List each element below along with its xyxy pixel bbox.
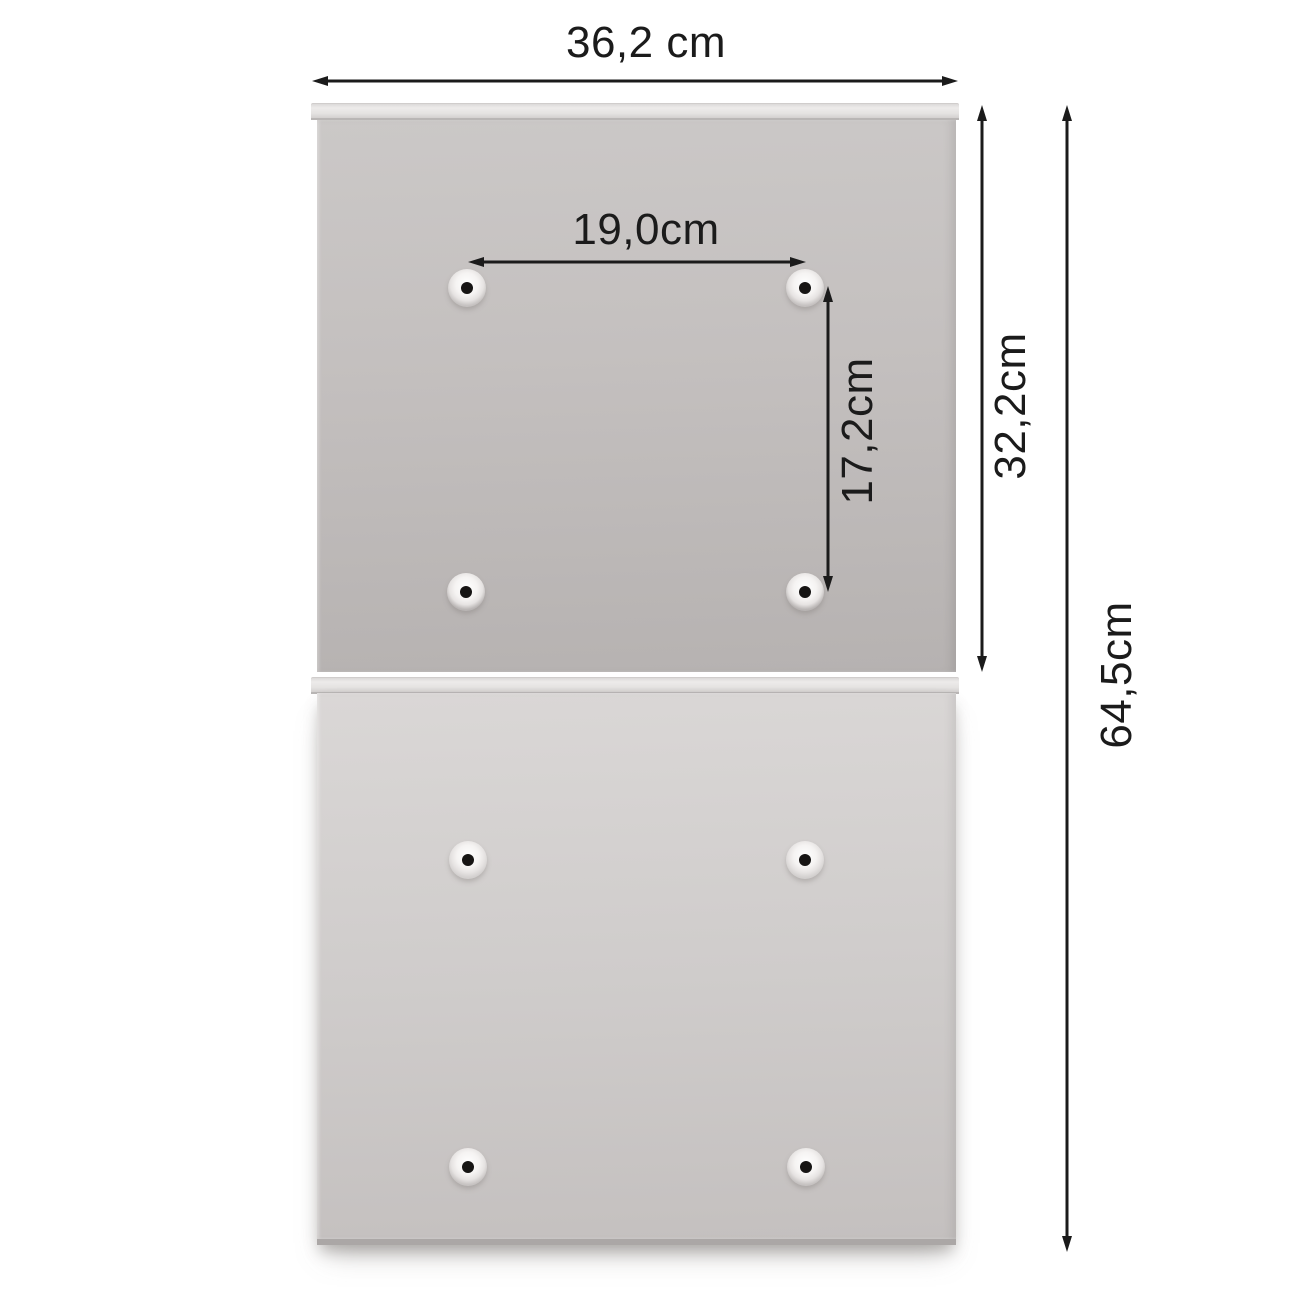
arrowhead-down-icon — [1062, 1236, 1072, 1252]
bottom-panel — [317, 693, 956, 1245]
mounting-hole-bottom-panel-bottom-right — [787, 1148, 825, 1186]
mounting-hole-top-panel-top-right — [786, 269, 824, 307]
dimension-line — [482, 261, 792, 264]
mounting-hole-top-panel-top-left — [448, 269, 486, 307]
dimension-label-upper-panel-height: 32,2cm — [989, 332, 1033, 479]
dimension-label-total-height: 64,5cm — [1095, 601, 1139, 748]
bottom-panel-lip — [311, 677, 959, 694]
arrowhead-right-icon — [790, 257, 806, 267]
arrowhead-right-icon — [942, 76, 958, 86]
mounting-hole-top-panel-bottom-left — [447, 573, 485, 611]
dimension-arrow-hole-spacing-horizontal — [468, 254, 806, 270]
dimension-label-hole-spacing-horizontal: 19,0cm — [572, 208, 719, 252]
dimension-arrow-overall-width — [312, 73, 958, 89]
mounting-hole-bottom-panel-top-right — [786, 841, 824, 879]
product-dimension-diagram: 36,2 cm 19,0cm 17,2cm 32,2cm 64,5cm — [0, 0, 1300, 1300]
arrowhead-down-icon — [823, 576, 833, 592]
mounting-hole-bottom-panel-bottom-left — [449, 1148, 487, 1186]
arrowhead-down-icon — [977, 656, 987, 672]
dimension-line — [1066, 119, 1069, 1238]
mounting-hole-top-panel-bottom-right — [786, 573, 824, 611]
dimension-line — [326, 80, 944, 83]
dimension-line — [981, 119, 984, 658]
dimension-arrow-total-height — [1059, 105, 1075, 1252]
dimension-label-overall-width: 36,2 cm — [566, 21, 726, 65]
dimension-line — [827, 300, 830, 578]
dimension-label-hole-spacing-vertical: 17,2cm — [836, 357, 880, 504]
mounting-hole-bottom-panel-top-left — [449, 841, 487, 879]
top-panel-lip — [311, 103, 959, 120]
